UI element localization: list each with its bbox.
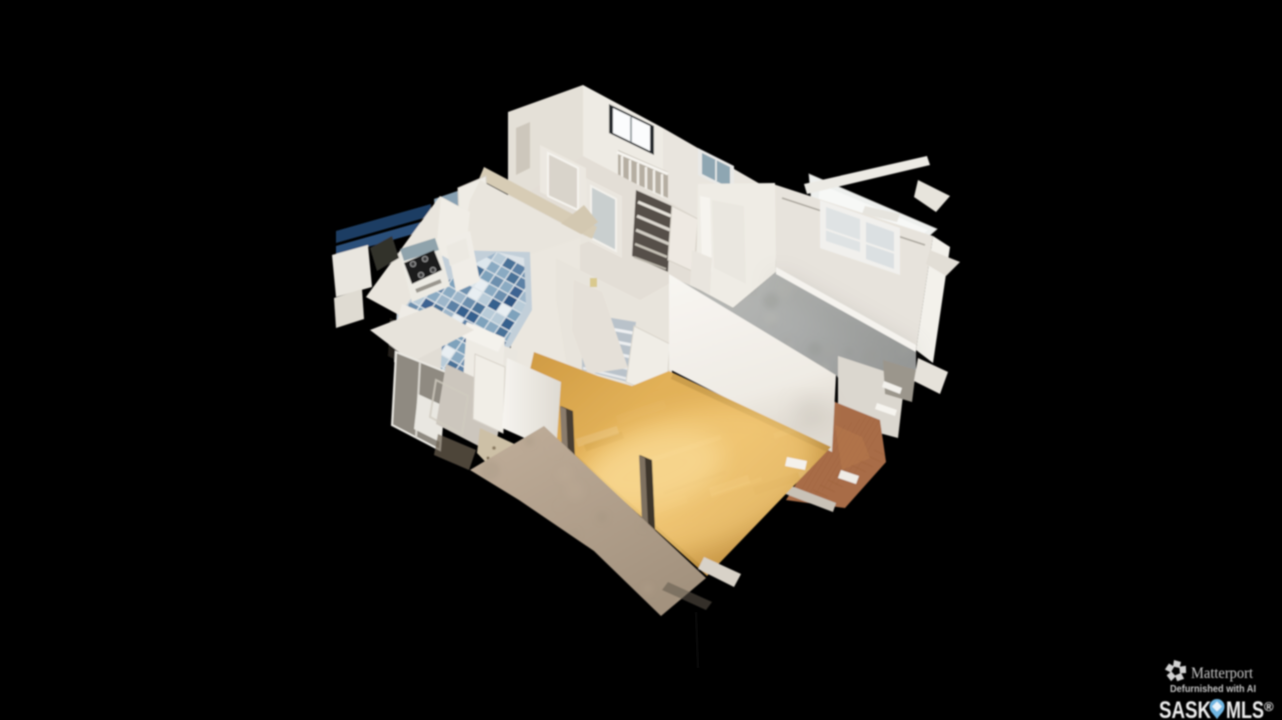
svg-text:MLS: MLS <box>1226 697 1264 720</box>
svg-text:Matterport: Matterport <box>1191 665 1254 682</box>
svg-text:SASK: SASK <box>1159 697 1212 720</box>
svg-text:®: ® <box>1264 699 1274 714</box>
svg-text:Defurnished with AI: Defurnished with AI <box>1170 683 1256 695</box>
